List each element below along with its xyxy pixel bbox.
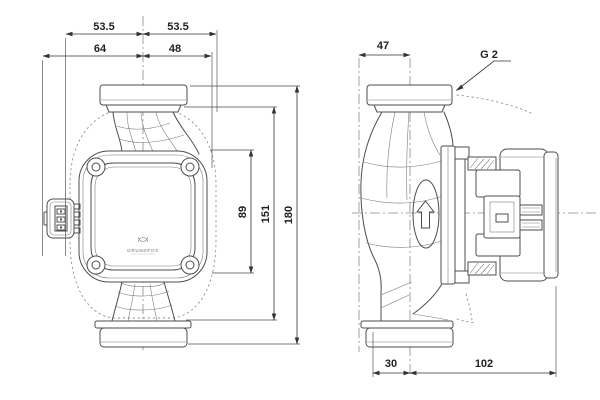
dim-width-mid-left: 64 <box>43 43 143 56</box>
dim-label-180: 180 <box>283 206 295 224</box>
clamp-screw-bottom <box>468 262 496 275</box>
clamp-step-bottom <box>455 271 469 283</box>
connector-latch-tab <box>44 212 47 225</box>
bottom-union-nut <box>100 328 187 347</box>
flow-direction-indicator <box>413 180 439 248</box>
top-neck-collar <box>106 105 181 112</box>
thread-callout: G 2 <box>456 49 512 91</box>
dim-depth-top: 47 <box>359 40 410 55</box>
dim-label-48: 48 <box>169 43 181 55</box>
side-view: G 2 47 30 102 <box>352 40 597 377</box>
dim-label-102: 102 <box>475 358 493 370</box>
flow-arrow-icon <box>417 201 434 228</box>
side-flange-plate <box>361 321 453 328</box>
dim-label-30: 30 <box>385 358 397 370</box>
electrical-connector <box>44 199 80 238</box>
side-bottom-union-nut <box>366 328 453 347</box>
front-view: GRUNDFOS <box>43 16 301 352</box>
dim-depth-back: 102 <box>410 358 556 373</box>
dim-label-64: 64 <box>94 43 107 55</box>
dim-depth-front: 30 <box>373 358 410 373</box>
bottom-flange-plate <box>95 321 191 328</box>
dim-height-total: 180 <box>283 86 297 344</box>
side-union-nut <box>367 85 452 105</box>
side-neck-collar <box>374 105 445 112</box>
drawing-canvas: GRUNDFOS <box>0 0 600 400</box>
dim-width-top-right: 53.5 <box>143 21 216 34</box>
dim-label-53-5-right: 53.5 <box>167 21 188 33</box>
dim-label-53-5-left: 53.5 <box>93 21 114 33</box>
clamp-screw-top <box>468 157 496 170</box>
dim-label-151: 151 <box>260 205 272 223</box>
thread-size-label: G 2 <box>480 49 498 61</box>
dim-width-mid-right: 48 <box>143 43 211 56</box>
top-pipe-contours <box>113 112 199 154</box>
dim-height-inner: 151 <box>260 107 274 320</box>
dim-width-top-left: 53.5 <box>66 21 143 34</box>
clamp-step-top <box>455 147 469 159</box>
dim-height-head: 89 <box>237 150 251 273</box>
bottom-pipe-contours <box>112 282 175 321</box>
volute-clamp-ring <box>455 152 465 278</box>
top-union-nut <box>100 85 187 105</box>
dim-label-89: 89 <box>237 206 249 218</box>
logo-wordmark: GRUNDFOS <box>127 248 159 253</box>
stator-housing-upper <box>476 170 520 197</box>
dim-label-47: 47 <box>377 40 389 52</box>
pump-dimensional-drawing: GRUNDFOS <box>0 0 600 400</box>
